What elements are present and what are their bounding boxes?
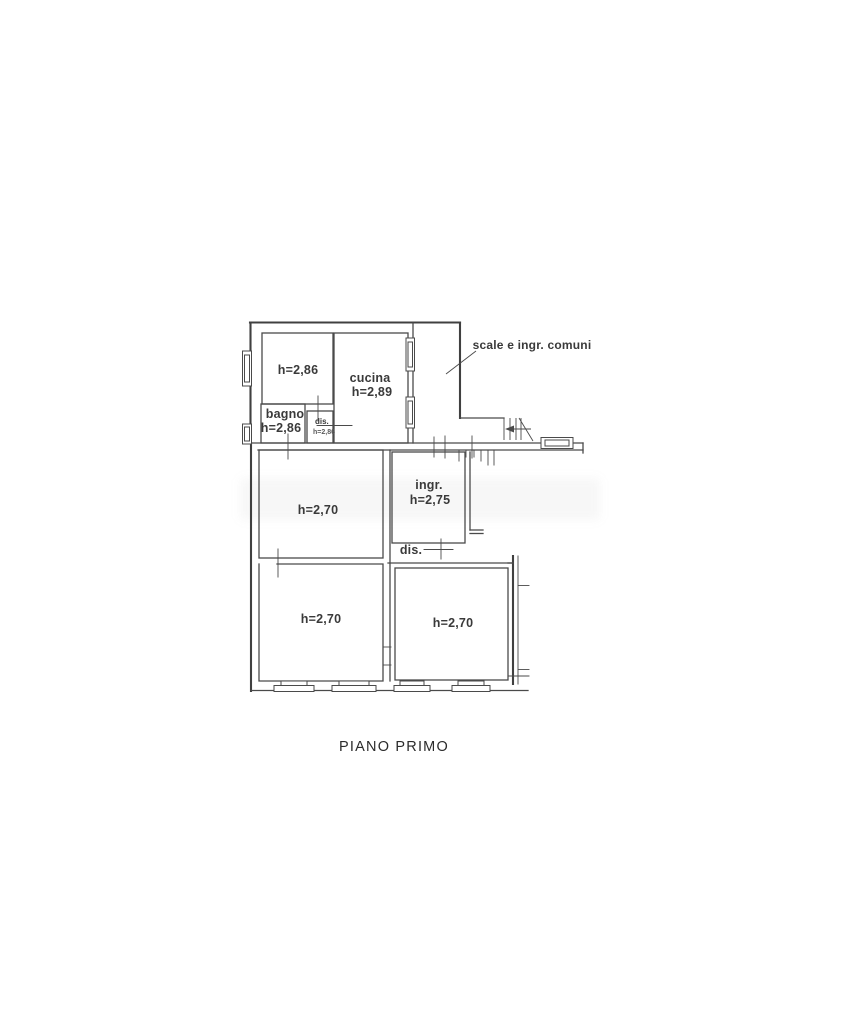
plan-title: PIANO PRIMO: [339, 739, 449, 755]
floor-plan-drawing: [0, 0, 857, 1024]
scale-ingresso-comuni-annotation: scale e ingr. comuni: [473, 338, 592, 352]
ingresso-label: ingr.: [415, 478, 442, 492]
room-mid-left-height-label: h=2,70: [298, 503, 338, 517]
ingresso-height-label: h=2,75: [410, 493, 450, 507]
dis-small-label: dis.: [315, 417, 329, 426]
dis-corridor-label: dis.: [400, 543, 422, 557]
stair-direction-arrow: [505, 426, 514, 433]
door-ticks: [278, 396, 529, 676]
dis-small-height-label: h=2,86: [313, 429, 335, 436]
cucina-height-label: h=2,89: [352, 385, 392, 399]
cucina-label: cucina: [350, 371, 391, 385]
floor-plan-page: h=2,86 bagno h=2,86 dis. h=2,86 cucina h…: [0, 0, 857, 1024]
bagno-label: bagno: [266, 407, 305, 421]
room-top-left-height-label: h=2,86: [278, 363, 318, 377]
bagno-height-label: h=2,86: [261, 421, 301, 435]
room-bottom-right-height-label: h=2,70: [433, 616, 473, 630]
room-bottom-left-height-label: h=2,70: [301, 612, 341, 626]
